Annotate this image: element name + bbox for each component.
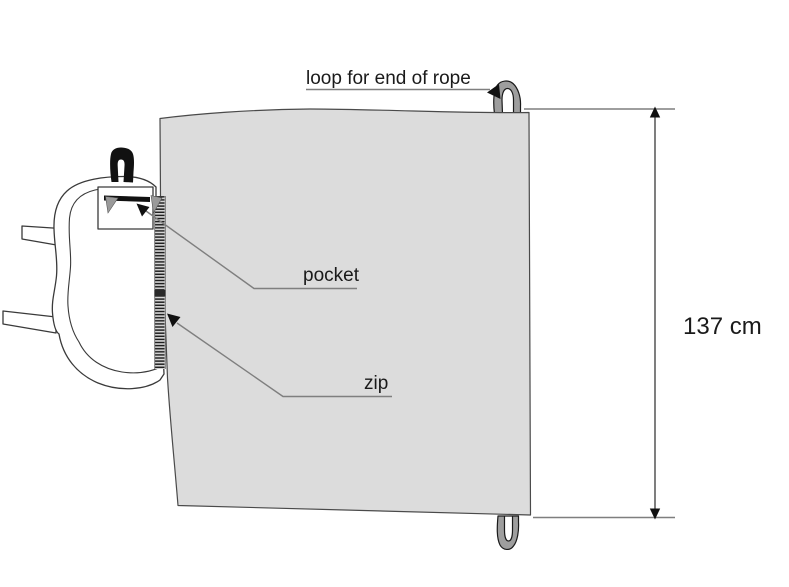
dimension-arrowhead-top [650, 107, 660, 118]
dimension-value-label: 137 cm [683, 313, 762, 340]
tarp-bag-diagram: loop for end of rope pocket zip 137 cm [0, 0, 789, 587]
zip-slider [155, 290, 166, 297]
strap-stub-bottom [3, 311, 56, 333]
sheet [160, 109, 531, 515]
pocket-label: pocket [303, 265, 360, 286]
zip-label: zip [364, 373, 388, 394]
rope-loop-bottom [497, 516, 518, 549]
zip-strip [155, 196, 166, 369]
rope-loop-label: loop for end of rope [306, 68, 471, 89]
diagram-canvas: loop for end of rope pocket zip 137 cm [0, 0, 789, 587]
